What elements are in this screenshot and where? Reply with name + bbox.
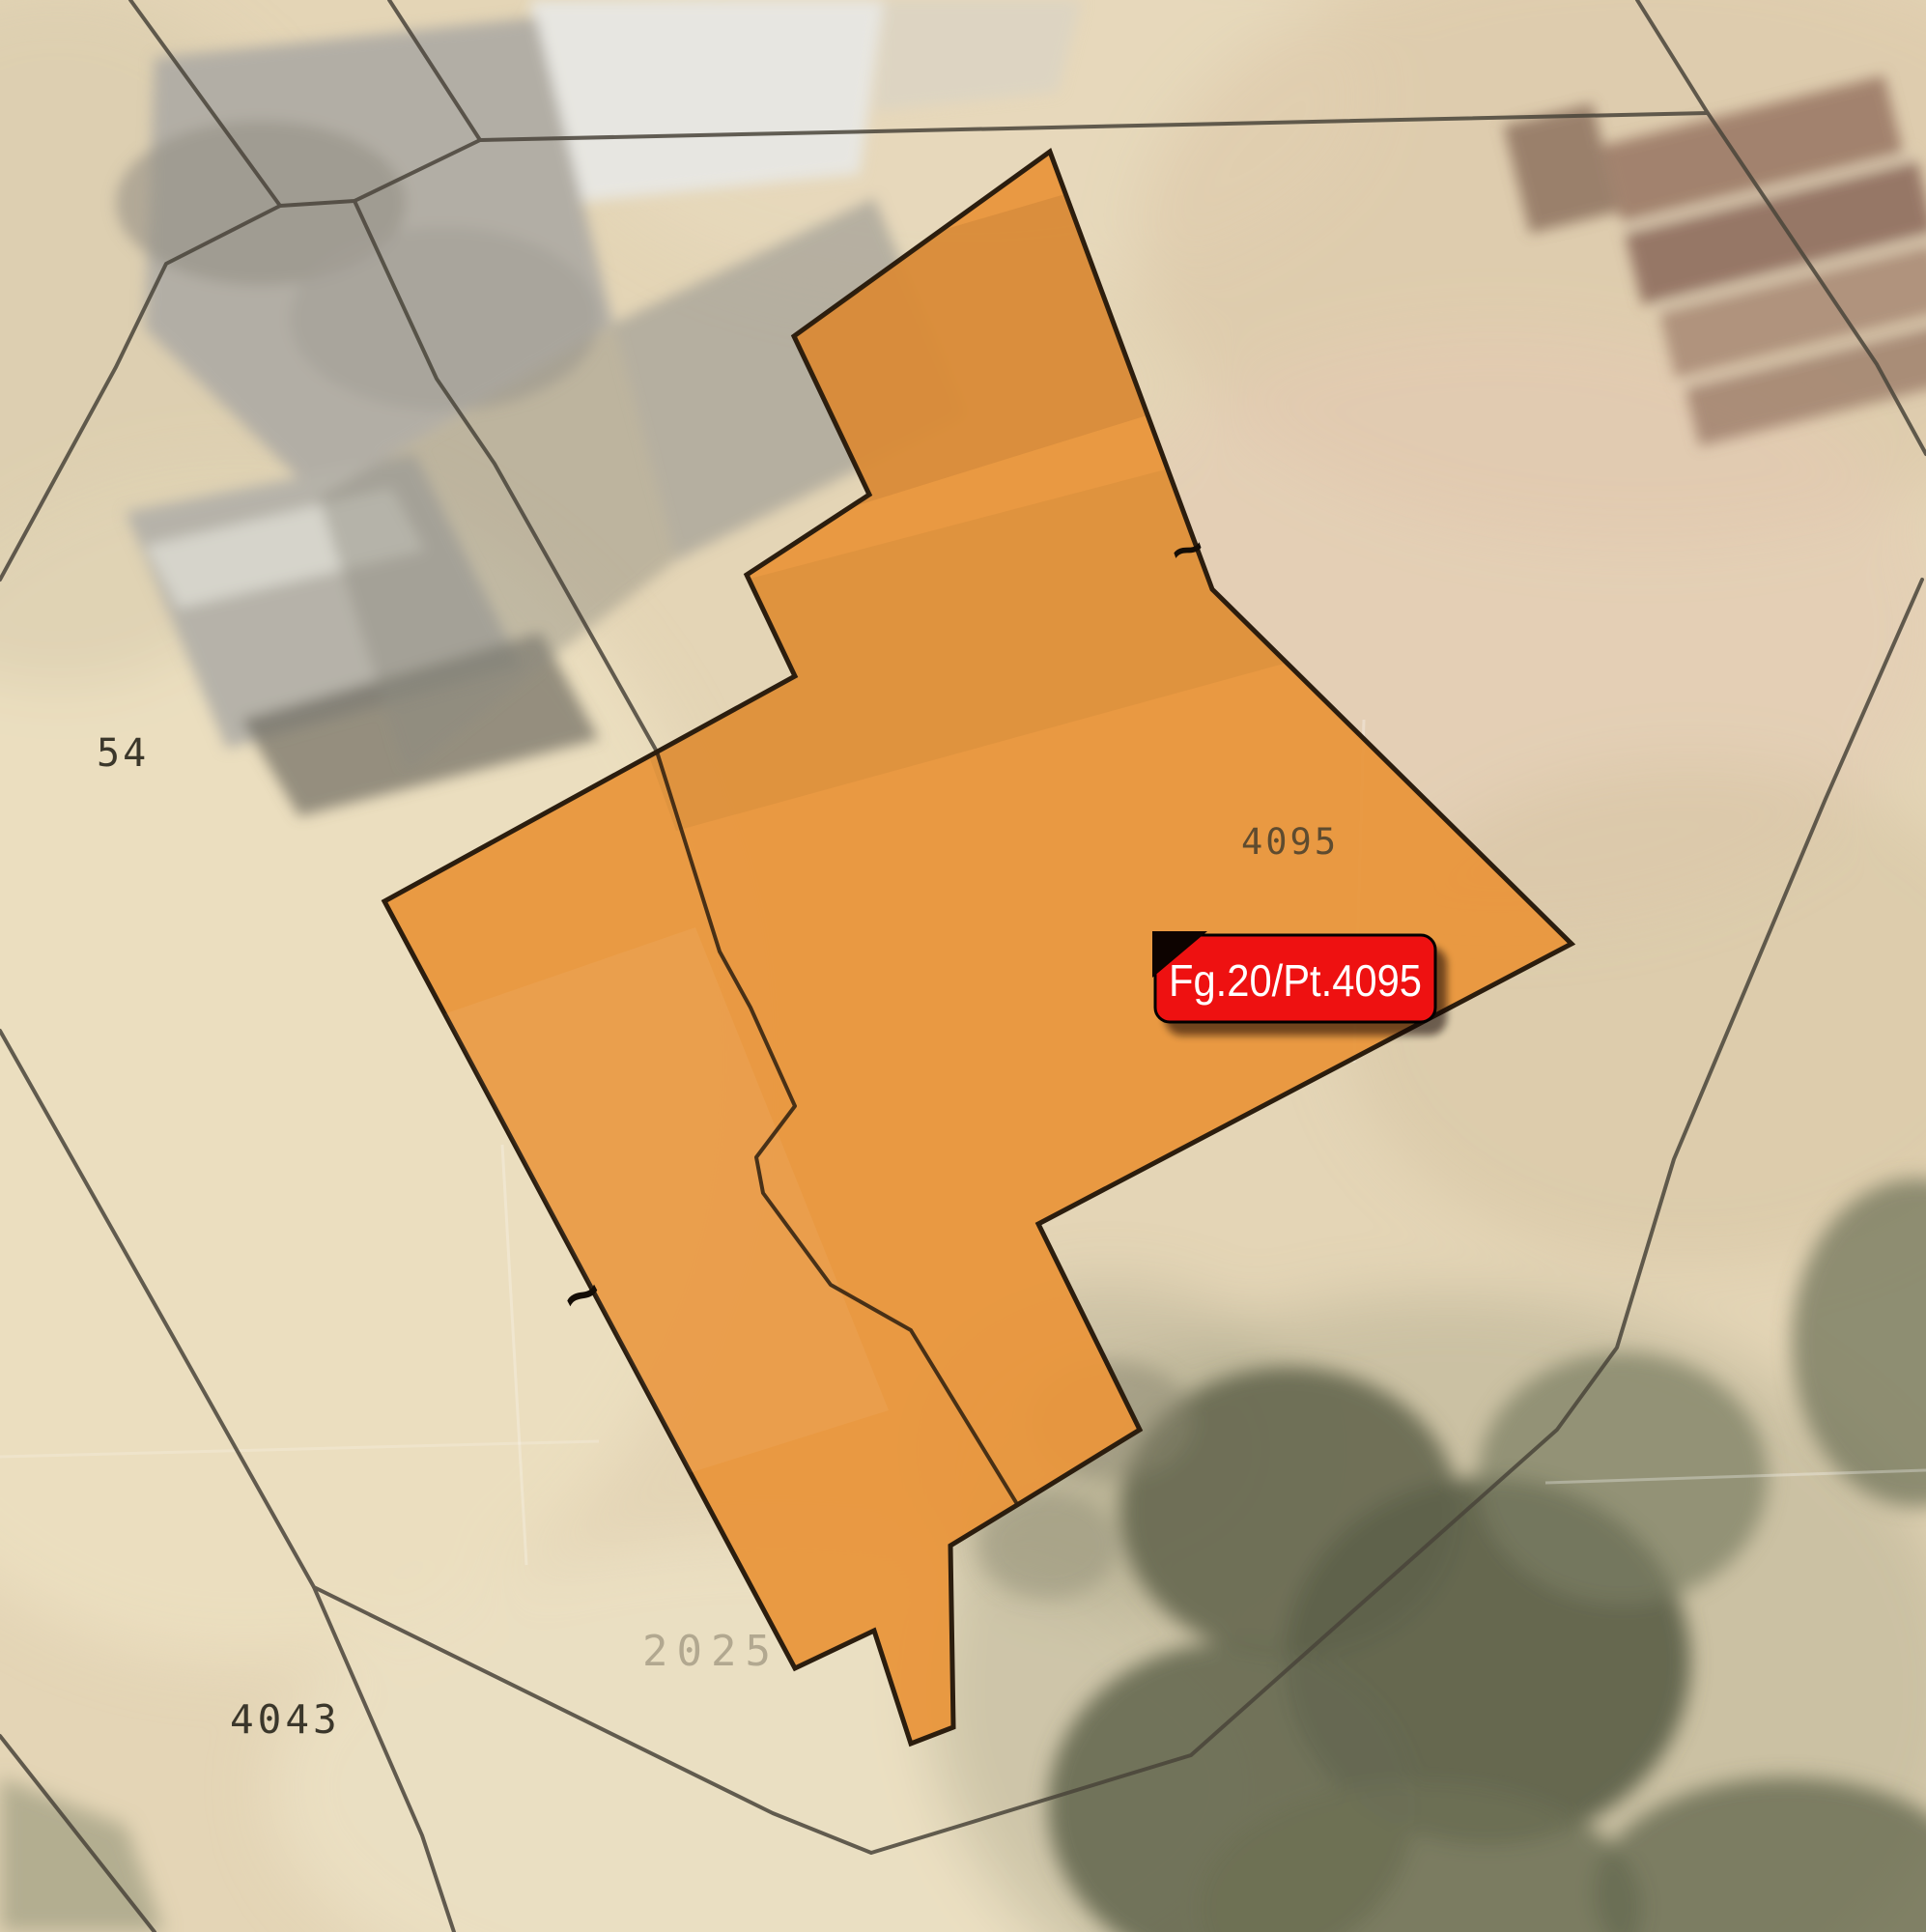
parcel-number-4095: 4095 xyxy=(1241,821,1339,863)
parcel-number-4043: 4043 xyxy=(230,1696,341,1743)
watermark-year: 2025 xyxy=(642,1627,779,1676)
parcel-number-54: 54 xyxy=(97,731,149,776)
marker-text: Fg.20/Pt.4095 xyxy=(1169,955,1422,1006)
cadastral-map-viewport[interactable]: ~ ~ 54 4095 4043 2025 Fg.20/Pt.4095 xyxy=(0,0,1926,1932)
white-roof xyxy=(529,0,884,203)
map-canvas[interactable]: ~ ~ 54 4095 4043 2025 Fg.20/Pt.4095 xyxy=(0,0,1926,1932)
parcel-marker-label[interactable]: Fg.20/Pt.4095 xyxy=(1152,931,1447,1036)
